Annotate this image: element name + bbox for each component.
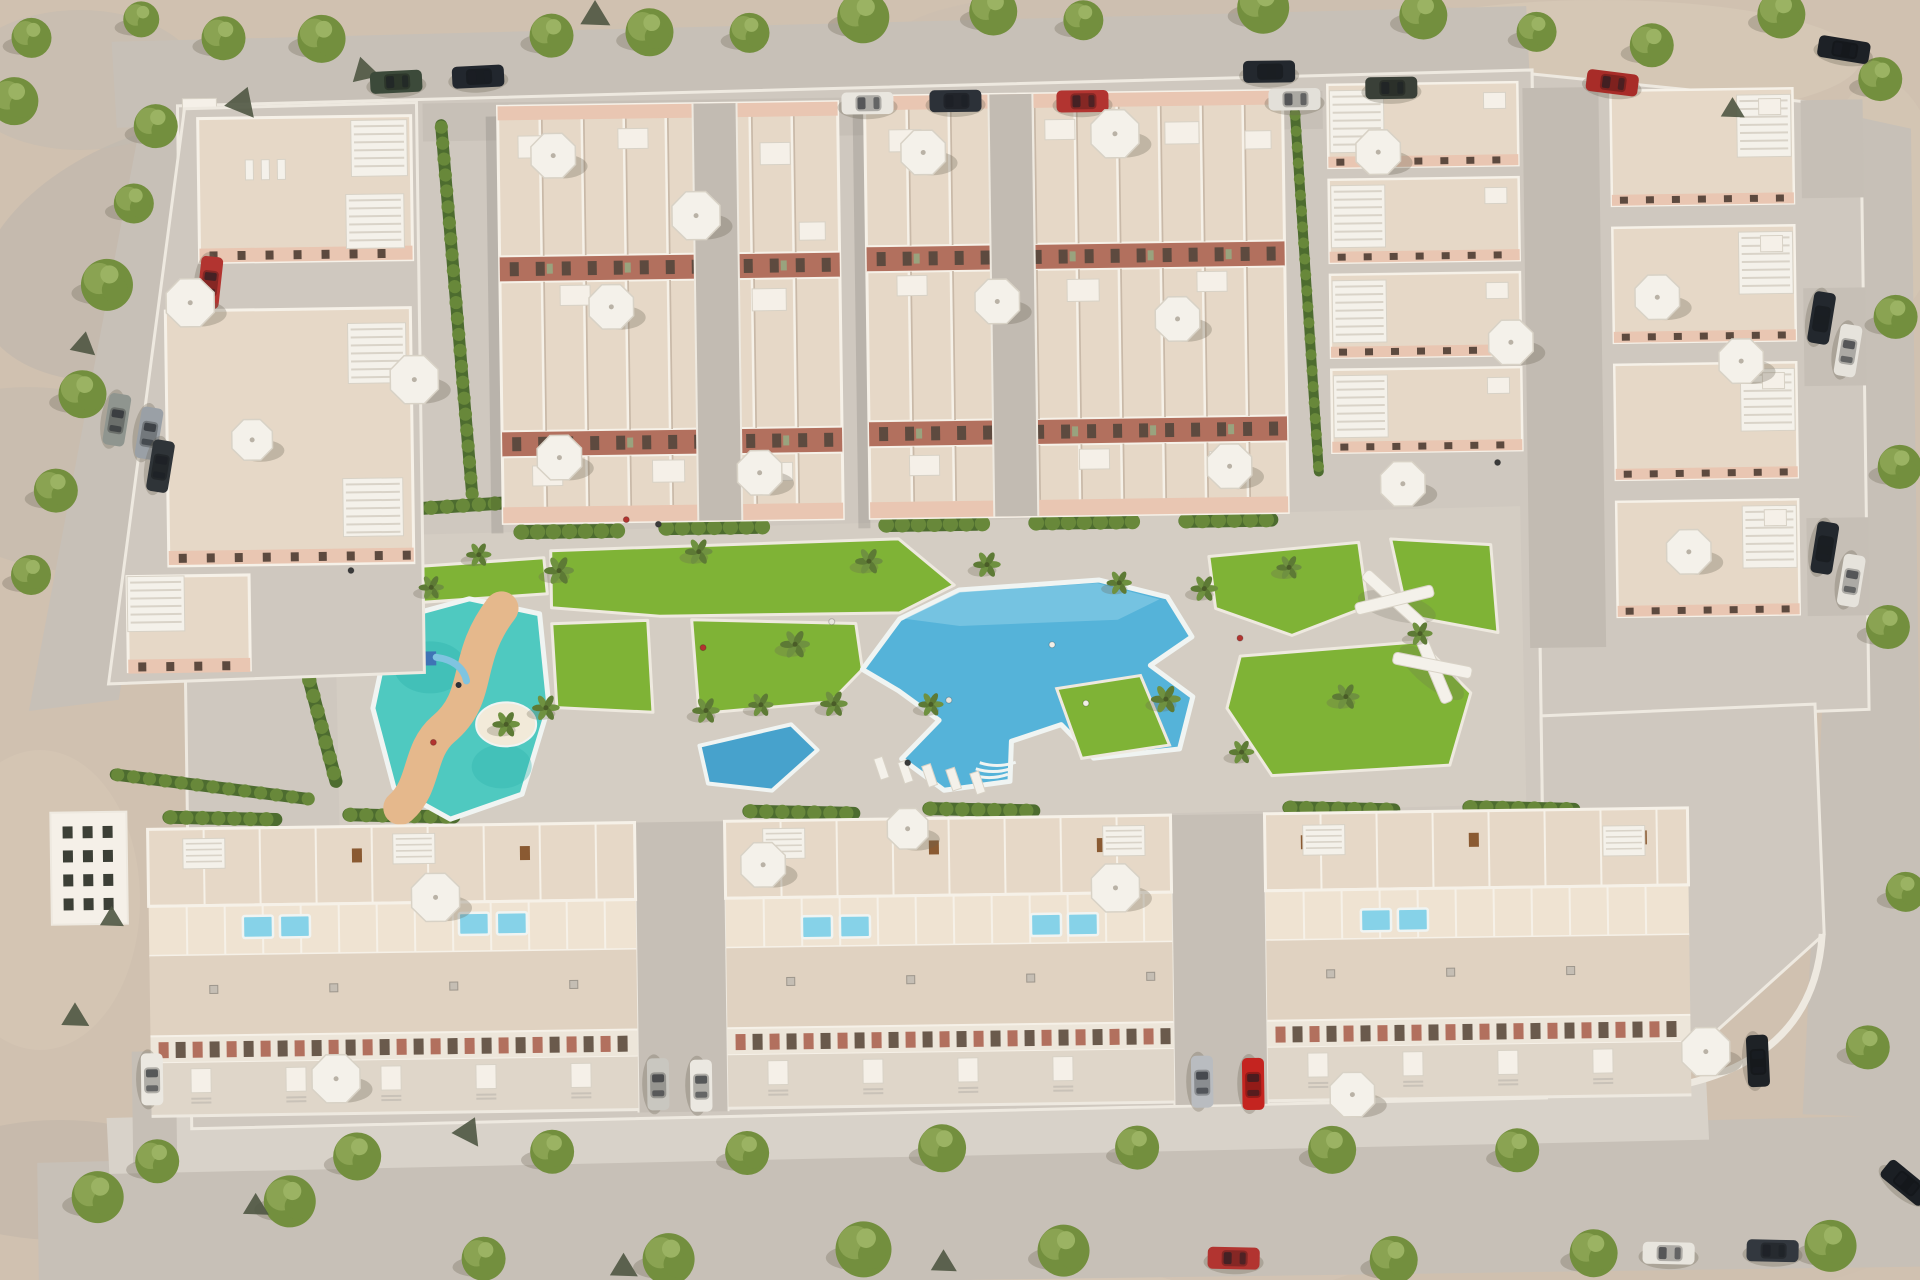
patio-divider — [1600, 809, 1601, 886]
window — [235, 553, 243, 562]
parked-car — [837, 92, 897, 120]
slat — [1336, 334, 1384, 335]
slat — [354, 150, 404, 151]
windshield — [468, 71, 477, 83]
window — [956, 1031, 966, 1047]
rear-window — [1196, 1088, 1208, 1094]
window — [871, 1032, 881, 1048]
person-dot — [623, 517, 629, 523]
window — [1622, 334, 1630, 341]
slat — [354, 142, 404, 143]
divider-shadow — [1039, 445, 1040, 500]
window — [516, 1037, 526, 1053]
stair-bulkhead — [1245, 131, 1271, 149]
window — [1700, 333, 1708, 340]
window — [1241, 247, 1250, 261]
stair-bulkhead — [1045, 119, 1075, 139]
windshield — [204, 272, 217, 281]
patio-divider — [1488, 811, 1489, 888]
solar-panel — [83, 850, 93, 862]
slat — [1106, 848, 1142, 849]
person-dot — [829, 619, 835, 625]
window — [1075, 1029, 1085, 1045]
person-dot — [348, 567, 354, 573]
window — [138, 662, 146, 671]
slat — [354, 158, 404, 159]
window — [879, 427, 888, 441]
window — [1726, 332, 1734, 339]
ac-unit — [330, 984, 338, 992]
slat — [1744, 422, 1792, 423]
parked-car — [1239, 60, 1299, 88]
slat — [351, 353, 403, 354]
slat — [346, 508, 400, 509]
entrance-porch — [863, 1059, 883, 1083]
solar-panel — [103, 850, 113, 862]
terrace-divider — [187, 906, 188, 956]
entrance-porch — [768, 1060, 788, 1084]
windshield — [1196, 1072, 1208, 1080]
entrance-porch — [1498, 1050, 1518, 1074]
solar-panel — [63, 826, 73, 838]
slat — [1336, 318, 1384, 319]
slat — [1742, 285, 1790, 286]
slat — [1337, 405, 1385, 406]
rear-window — [1675, 1247, 1681, 1259]
stair-bulkhead — [1759, 98, 1781, 114]
slat — [1742, 253, 1790, 254]
terrace-plunge-pool — [497, 912, 527, 934]
entrance-porch — [1053, 1056, 1073, 1080]
driveway — [1801, 99, 1864, 198]
terrace-divider — [878, 896, 879, 946]
slat — [1334, 207, 1382, 208]
entrance-porch — [191, 1069, 211, 1093]
window — [1343, 1026, 1353, 1042]
terrace-divider — [605, 900, 606, 950]
window — [1336, 159, 1344, 166]
window — [1390, 253, 1398, 260]
terrace-divider — [1304, 890, 1305, 940]
slat — [130, 606, 181, 607]
window — [346, 1039, 356, 1055]
slat — [346, 524, 400, 525]
window — [1615, 1022, 1625, 1038]
terrace-plunge-pool — [1031, 914, 1061, 936]
window — [822, 258, 831, 272]
slat — [1334, 191, 1382, 192]
window — [1339, 349, 1347, 356]
windshield — [1072, 95, 1080, 107]
terrace-divider — [339, 904, 340, 954]
window — [193, 1042, 203, 1058]
slat — [1335, 294, 1383, 295]
slat — [766, 839, 802, 840]
window — [1750, 195, 1758, 202]
entrance-porch — [381, 1066, 401, 1090]
slat — [351, 329, 403, 330]
window — [349, 249, 357, 258]
patio-divider — [1432, 811, 1433, 888]
window — [905, 427, 914, 441]
slat — [1742, 277, 1790, 278]
person-dot — [1083, 700, 1089, 706]
window — [295, 1040, 305, 1056]
solar-panel — [63, 850, 73, 862]
slat — [351, 337, 403, 338]
entrance-porch — [958, 1058, 978, 1082]
window — [176, 1042, 186, 1058]
window — [1598, 1022, 1608, 1038]
window — [1652, 607, 1660, 614]
slat — [1337, 397, 1385, 398]
front-strip — [728, 1049, 1175, 1108]
window — [617, 1036, 627, 1052]
terrace-divider — [954, 895, 955, 945]
slat — [351, 345, 403, 346]
window — [1160, 1028, 1170, 1044]
slat — [1306, 848, 1342, 849]
window — [293, 250, 301, 259]
stair-bulkhead — [1165, 122, 1199, 144]
window — [1698, 196, 1706, 203]
windshield — [695, 1076, 707, 1084]
window — [1492, 156, 1500, 163]
window — [1137, 248, 1146, 262]
window — [1411, 1025, 1421, 1041]
slat — [1106, 836, 1142, 837]
slat — [1746, 543, 1794, 544]
stair-bulkhead — [1485, 187, 1507, 203]
window — [1466, 157, 1474, 164]
window — [244, 1041, 254, 1057]
slat — [396, 856, 432, 857]
rear-window — [146, 1085, 158, 1091]
terrace-divider — [1607, 886, 1608, 936]
terrace-plunge-pool — [280, 915, 310, 937]
block-walkway — [692, 103, 742, 521]
unit-divider — [1205, 443, 1206, 498]
windshield — [1751, 1051, 1763, 1060]
windshield — [1259, 66, 1267, 78]
parked-car — [925, 90, 985, 118]
window — [1776, 194, 1784, 201]
slat — [1337, 421, 1385, 422]
stair-bulkhead — [760, 142, 790, 164]
window — [990, 1030, 1000, 1046]
unit-divider — [796, 453, 797, 503]
window — [1650, 470, 1658, 477]
window — [1111, 249, 1120, 263]
rear-window — [1778, 1245, 1784, 1257]
parked-car — [685, 1056, 713, 1116]
slat — [1742, 269, 1790, 270]
window — [1620, 197, 1628, 204]
window — [1007, 1030, 1017, 1046]
slat — [1740, 124, 1788, 125]
window — [588, 261, 597, 275]
windshield — [386, 76, 395, 88]
windshield — [857, 97, 865, 109]
window — [1704, 607, 1712, 614]
rear-window — [961, 95, 967, 107]
stair-bulkhead — [560, 285, 590, 305]
window — [668, 435, 677, 449]
shutter — [781, 260, 787, 270]
window — [1139, 423, 1148, 437]
window — [549, 1037, 559, 1053]
slat — [1336, 381, 1384, 382]
slat — [1746, 551, 1794, 552]
solar-panel — [84, 898, 94, 910]
windshield — [1381, 82, 1389, 94]
slat — [349, 208, 401, 209]
window — [1392, 443, 1400, 450]
window — [905, 1032, 915, 1048]
terrace-plunge-pool — [1398, 908, 1428, 930]
window — [1468, 252, 1476, 259]
slat — [1334, 199, 1382, 200]
window — [536, 262, 545, 276]
window — [957, 426, 966, 440]
window — [1394, 1025, 1404, 1041]
slat — [346, 484, 400, 485]
lawn — [552, 620, 653, 713]
window — [772, 433, 781, 447]
window — [329, 1040, 339, 1056]
window — [1626, 608, 1634, 615]
slat — [1740, 132, 1788, 133]
person-dot — [1495, 459, 1501, 465]
window — [1340, 444, 1348, 451]
window — [769, 1034, 779, 1050]
window — [744, 259, 753, 273]
slat — [186, 855, 222, 856]
window — [291, 552, 299, 561]
window — [512, 437, 521, 451]
shutter — [783, 435, 789, 445]
person-dot — [1049, 642, 1055, 648]
window — [770, 258, 779, 272]
window — [666, 260, 675, 274]
windshield — [652, 1074, 664, 1082]
slat — [354, 134, 404, 135]
ac-unit — [1027, 974, 1035, 982]
window — [903, 252, 912, 266]
rear-window — [484, 70, 491, 82]
shutter — [916, 429, 922, 439]
window — [363, 1039, 373, 1055]
window — [319, 552, 327, 561]
window — [261, 1041, 271, 1057]
rear-window — [1240, 1252, 1246, 1264]
window — [1676, 470, 1684, 477]
slat — [1335, 302, 1383, 303]
ac-unit — [907, 976, 915, 984]
shutter — [1148, 250, 1154, 260]
stair-bulkhead — [1487, 377, 1509, 393]
slat — [1106, 842, 1142, 843]
entrance-porch — [1308, 1053, 1328, 1077]
slat — [131, 622, 182, 623]
slat — [130, 582, 181, 583]
slat — [1335, 310, 1383, 311]
window — [1678, 607, 1686, 614]
slat — [349, 240, 401, 241]
terrace-plunge-pool — [1361, 909, 1391, 931]
rear-window — [1088, 95, 1094, 107]
shutter — [625, 263, 631, 273]
person-dot — [905, 760, 911, 766]
window — [877, 252, 886, 266]
slat — [766, 833, 802, 834]
sun-lounger — [277, 159, 285, 179]
window — [1059, 249, 1068, 263]
person-dot — [1237, 635, 1243, 641]
stair-bulkhead — [652, 460, 684, 482]
window — [1444, 442, 1452, 449]
unit-divider — [953, 446, 954, 501]
window — [263, 553, 271, 562]
patio-divider — [1376, 812, 1377, 889]
window — [1496, 1023, 1506, 1039]
shutter — [1070, 251, 1076, 261]
window — [1752, 332, 1760, 339]
rear-window — [1300, 93, 1306, 105]
slat — [1740, 148, 1788, 149]
patio-divider — [596, 823, 597, 900]
slat — [1337, 429, 1385, 430]
terrace-plunge-pool — [840, 915, 870, 937]
window — [482, 1038, 492, 1054]
patio-divider — [836, 820, 837, 897]
person-dot — [946, 697, 952, 703]
terrace-divider — [1645, 885, 1646, 935]
slat — [349, 216, 401, 217]
window — [616, 436, 625, 450]
window — [1564, 1022, 1574, 1038]
window — [1360, 1025, 1370, 1041]
terrace-divider — [529, 901, 530, 951]
window — [798, 433, 807, 447]
terrace-divider — [764, 898, 765, 948]
divider-shadow — [798, 453, 799, 503]
terrace-divider — [992, 895, 993, 945]
rear-window — [1397, 82, 1403, 94]
slat — [349, 232, 401, 233]
window — [1702, 470, 1710, 477]
hedge-strip — [513, 523, 625, 540]
slat — [349, 200, 401, 201]
slat — [186, 843, 222, 844]
rear-window — [652, 1090, 664, 1096]
slat — [1744, 406, 1792, 407]
window — [1581, 1022, 1591, 1038]
window — [1087, 424, 1096, 438]
window — [1275, 1026, 1285, 1042]
window — [1189, 248, 1198, 262]
patio-divider — [316, 827, 317, 904]
terrace-plunge-pool — [1068, 913, 1098, 935]
slat — [1746, 535, 1794, 536]
parked-car — [136, 1049, 164, 1109]
window — [600, 1036, 610, 1052]
slat — [186, 861, 222, 862]
window — [179, 554, 187, 563]
solar-panel — [103, 826, 113, 838]
entrance-porch — [476, 1065, 496, 1089]
window — [566, 1036, 576, 1052]
patio-divider — [1656, 808, 1657, 885]
window — [1267, 247, 1276, 261]
window — [397, 1039, 407, 1055]
window — [752, 1034, 762, 1050]
sun-lounger — [245, 160, 253, 180]
window — [380, 1039, 390, 1055]
window — [981, 251, 990, 265]
window — [1366, 443, 1374, 450]
sun-lounger — [261, 160, 269, 180]
stair-bulkhead — [1197, 271, 1227, 291]
window — [1672, 196, 1680, 203]
window — [1632, 1022, 1642, 1038]
window — [207, 553, 215, 562]
window — [278, 1040, 288, 1056]
slat — [351, 361, 403, 362]
ac-unit — [450, 982, 458, 990]
windshield — [1762, 1245, 1770, 1257]
window — [820, 1033, 830, 1049]
terrace-divider — [567, 901, 568, 951]
window — [1365, 348, 1373, 355]
rear-window — [1247, 1090, 1259, 1096]
window — [1243, 422, 1252, 436]
slat — [1334, 215, 1382, 216]
window — [1470, 442, 1478, 449]
stair-bulkhead — [1079, 449, 1109, 469]
slat — [354, 166, 404, 167]
terrace-divider — [1456, 888, 1457, 938]
window — [1092, 1029, 1102, 1045]
window — [642, 435, 651, 449]
shutter — [1228, 424, 1234, 434]
slat — [346, 492, 400, 493]
window — [1217, 422, 1226, 436]
slat — [1333, 112, 1381, 113]
patio-divider — [260, 828, 261, 905]
window — [1024, 1030, 1034, 1046]
pool-terraces — [149, 900, 637, 957]
window — [973, 1031, 983, 1047]
window — [746, 434, 755, 448]
window — [614, 261, 623, 275]
window — [1061, 424, 1070, 438]
site-group — [0, 0, 1920, 1280]
terrace-divider — [1494, 888, 1495, 938]
window — [1513, 1023, 1523, 1039]
long-roof — [149, 950, 637, 1037]
rear-window — [695, 1092, 707, 1098]
window — [321, 250, 329, 259]
window — [194, 662, 202, 671]
slat — [1744, 398, 1792, 399]
ac-unit — [1327, 970, 1335, 978]
stair-bulkhead — [909, 455, 939, 475]
rear-window — [1275, 65, 1281, 77]
window — [1443, 347, 1451, 354]
window — [1428, 1024, 1438, 1040]
person-dot — [430, 739, 436, 745]
